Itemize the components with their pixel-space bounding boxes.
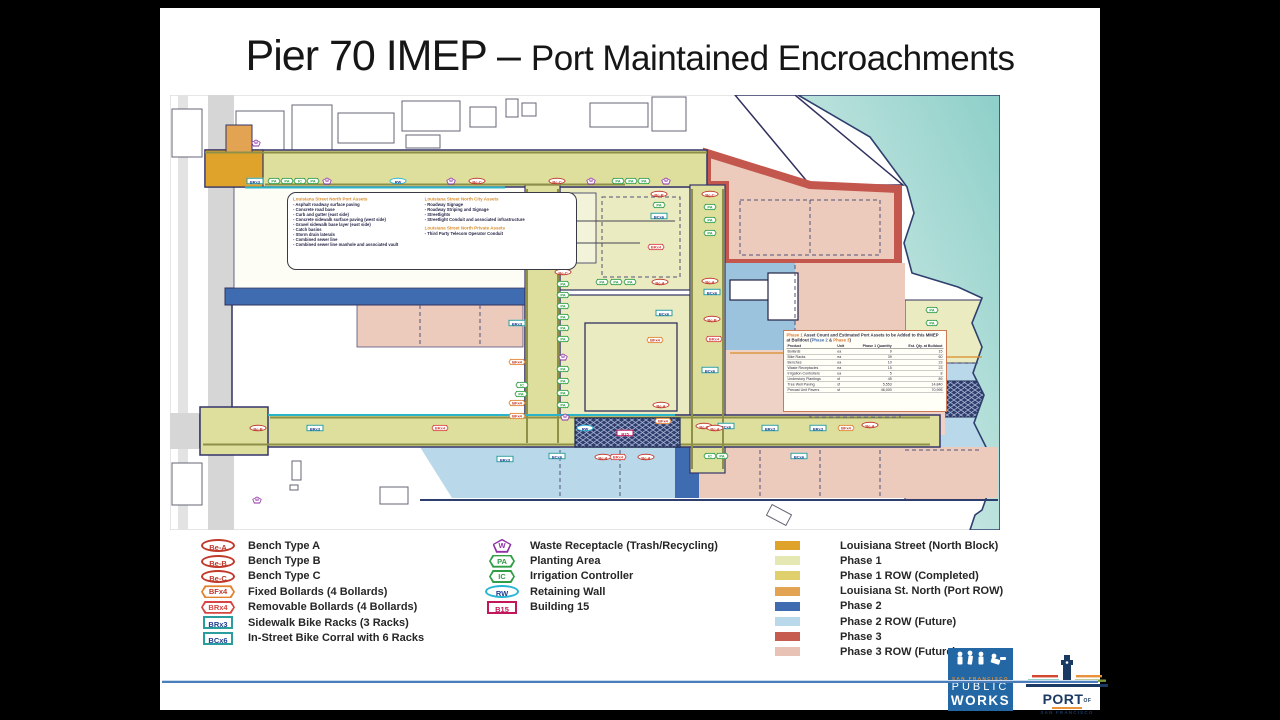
legend-icon-cell: BCx6: [196, 632, 240, 645]
asset-count-table: Phase 1 Asset Count and Estimated Port A…: [783, 330, 947, 412]
port-logo-dash: [1052, 707, 1082, 709]
legend-area-row: Phase 2: [775, 599, 1003, 614]
legend-area-row: Louisiana St. North (Port ROW): [775, 584, 1003, 599]
legend-icon-cell: B15: [482, 601, 522, 614]
legend-marker-brx4: BRx4: [201, 601, 235, 614]
legend-icon-cell: PA: [482, 555, 522, 568]
callout-private-list: Third Party Telecom Operator Conduit: [425, 232, 571, 237]
legend-marker-bcx6: BCx6: [203, 632, 233, 645]
legend-area-row: Louisiana Street (North Block): [775, 538, 1003, 553]
legend-area-row: Phase 1: [775, 553, 1003, 568]
legend-marker-be-b: Be-B: [201, 555, 235, 568]
legend-icon-cell: W: [482, 539, 522, 553]
page-title: Pier 70 IMEP – Port Maintained Encroachm…: [160, 32, 1100, 81]
legend-area-swatch: [775, 587, 800, 596]
legend-marker-bfx4: BFx4: [201, 585, 235, 598]
legend-icon-cell: Be-C: [196, 570, 240, 583]
legend-label: Phase 2: [840, 600, 882, 612]
louisiana-street-assets-callout: Louisiana Street North Port Assets Aspha…: [287, 192, 577, 270]
legend-row: ICIrrigation Controller: [482, 569, 718, 584]
callout-city-title: Louisiana Street North City Assets: [425, 197, 571, 202]
legend-area-swatch: [775, 556, 800, 565]
legend-marker-b15: B15: [487, 601, 517, 614]
presentation-slide: Pier 70 IMEP – Port Maintained Encroachm…: [160, 8, 1100, 710]
legend-area-swatch: [775, 571, 800, 580]
legend-marker-be-a: Be-A: [201, 539, 235, 552]
legend-row: PAPlanting Area: [482, 553, 718, 568]
callout-item: Third Party Telecom Operator Conduit: [425, 232, 571, 237]
legend-row: BRx4Removable Bollards (4 Bollards): [196, 600, 424, 615]
legend-marker-be-c: Be-C: [201, 570, 235, 583]
legend-label: Louisiana Street (North Block): [840, 540, 998, 552]
legend-column-site-furnishings: Be-ABench Type ABe-BBench Type BBe-CBenc…: [196, 538, 424, 646]
legend-area-swatch: [775, 617, 800, 626]
legend-area-row: Phase 1 ROW (Completed): [775, 568, 1003, 583]
legend-label: Retaining Wall: [530, 586, 605, 598]
legend-label: Phase 3: [840, 631, 882, 643]
legend-marker-w: W: [493, 539, 512, 553]
building-15-hatch: [575, 418, 680, 447]
asset-table-cell: sf: [836, 387, 849, 393]
port-city-label: SAN FRANCISCO: [1026, 710, 1108, 715]
asset-table-cell: 46,000: [849, 387, 893, 393]
legend-row: B15Building 15: [482, 600, 718, 615]
callout-port-list: Asphalt roadway surface pavingConcrete r…: [293, 203, 418, 248]
legend-row: Be-BBench Type B: [196, 553, 424, 568]
legend-label: Bench Type A: [248, 540, 320, 552]
legend-column-facilities: WWaste Receptacle (Trash/Recycling)PAPla…: [482, 538, 718, 615]
asset-table-cell: Precast Unit Pavers: [787, 387, 837, 393]
legend-marker-rw: RW: [485, 585, 519, 598]
legend-icon-cell: BRx3: [196, 616, 240, 629]
legend-row: BCx6In-Street Bike Corral with 6 Racks: [196, 630, 424, 645]
legend-label: Fixed Bollards (4 Bollards): [248, 586, 387, 598]
legend-icon-cell: BFx4: [196, 585, 240, 598]
screenshot-viewport: Pier 70 IMEP – Port Maintained Encroachm…: [0, 0, 1280, 720]
asset-table-title: Phase 1 Asset Count and Estimated Port A…: [787, 333, 944, 343]
callout-city-list: Roadway SignageRoadway Striping and Sign…: [425, 203, 571, 223]
legend-area-row: Phase 3: [775, 629, 1003, 644]
legend-label: Irrigation Controller: [530, 570, 633, 582]
callout-item: Combined sewer line manhole and associat…: [293, 242, 418, 247]
legend-label: Phase 1 ROW (Completed): [840, 570, 979, 582]
legend-marker-brx3: BRx3: [203, 616, 233, 629]
legend-marker-pa: PA: [489, 555, 515, 568]
callout-port-title: Louisiana Street North Port Assets: [293, 197, 418, 202]
legend-label: Sidewalk Bike Racks (3 Racks): [248, 617, 409, 629]
legend-label: Waste Receptacle (Trash/Recycling): [530, 540, 718, 552]
legend-label: Phase 3 ROW (Future): [840, 646, 956, 658]
legend-label: Phase 1: [840, 555, 882, 567]
legend-marker-ic: IC: [489, 570, 515, 583]
legend-area-swatch: [775, 602, 800, 611]
legend-label: Removable Bollards (4 Bollards): [248, 601, 417, 613]
callout-item: Streetlight Conduit and associated infra…: [425, 218, 571, 223]
callout-private-title: Louisiana Street North Private Assets: [425, 225, 571, 230]
legend-row: RWRetaining Wall: [482, 584, 718, 599]
legend-row: BFx4Fixed Bollards (4 Bollards): [196, 584, 424, 599]
asset-table: ProductUnitPhase 1 QuantityEst. Qty. at …: [787, 344, 944, 393]
slide-accent-line: [162, 680, 1098, 683]
pw-works-label: WORKS: [948, 694, 1013, 709]
legend-label: Bench Type C: [248, 570, 321, 582]
site-plan-map: Louisiana Street North Port Assets Aspha…: [170, 95, 1000, 530]
legend-icon-cell: Be-B: [196, 555, 240, 568]
title-main: Pier 70 IMEP –: [246, 32, 531, 80]
asset-table-row: Precast Unit Paverssf46,00070,995: [787, 387, 944, 393]
legend-label: Louisiana St. North (Port ROW): [840, 585, 1003, 597]
legend-label: In-Street Bike Corral with 6 Racks: [248, 632, 424, 644]
legend-area-row: Phase 2 ROW (Future): [775, 614, 1003, 629]
workers-pictogram: [948, 648, 1013, 670]
legend-row: Be-CBench Type C: [196, 569, 424, 584]
legend-icon-cell: BRx4: [196, 601, 240, 614]
legend-row: BRx3Sidewalk Bike Racks (3 Racks): [196, 615, 424, 630]
legend-label: Planting Area: [530, 555, 601, 567]
legend-row: WWaste Receptacle (Trash/Recycling): [482, 538, 718, 553]
site-plan-drawing: [170, 95, 1000, 530]
legend-area-swatch: [775, 647, 800, 656]
legend-label: Bench Type B: [248, 555, 321, 567]
legend-area-swatch: [775, 632, 800, 641]
legend-icon-cell: IC: [482, 570, 522, 583]
legend-column-phase-areas: Louisiana Street (North Block)Phase 1Pha…: [775, 538, 1003, 660]
legend-icon-cell: RW: [482, 585, 522, 598]
legend-icon-cell: Be-A: [196, 539, 240, 552]
title-sub: Port Maintained Encroachments: [531, 39, 1015, 78]
legend-label: Building 15: [530, 601, 589, 613]
asset-table-cell: 70,995: [893, 387, 944, 393]
legend-label: Phase 2 ROW (Future): [840, 616, 956, 628]
port-name: PORTOF: [1026, 692, 1108, 706]
legend-area-swatch: [775, 541, 800, 550]
legend-row: Be-ABench Type A: [196, 538, 424, 553]
